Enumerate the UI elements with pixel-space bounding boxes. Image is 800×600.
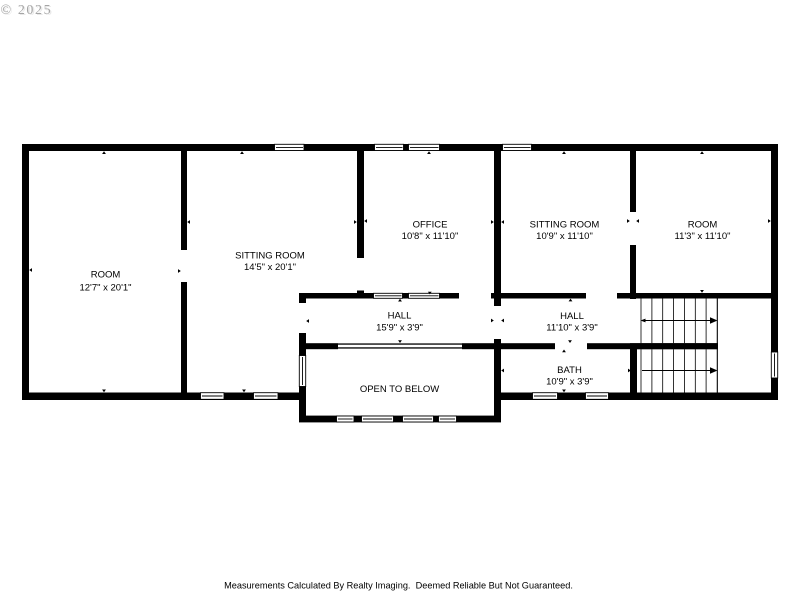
svg-text:10'8" x 11'10": 10'8" x 11'10": [402, 231, 459, 242]
svg-text:HALL: HALL: [560, 311, 584, 322]
svg-text:11'3" x 11'10": 11'3" x 11'10": [675, 231, 731, 242]
svg-text:12'7" x 20'1": 12'7" x 20'1": [79, 283, 131, 294]
svg-text:OFFICE: OFFICE: [413, 220, 448, 231]
svg-text:© 2025: © 2025: [1, 3, 53, 18]
svg-text:14'5" x 20'1": 14'5" x 20'1": [244, 262, 296, 273]
svg-text:SITTING ROOM: SITTING ROOM: [530, 220, 600, 231]
svg-text:10'9" x 3'9": 10'9" x 3'9": [546, 377, 593, 388]
svg-text:10'9" x 11'10": 10'9" x 11'10": [536, 231, 593, 242]
svg-text:ROOM: ROOM: [688, 220, 718, 231]
svg-text:HALL: HALL: [388, 311, 412, 322]
svg-text:15'9" x 3'9": 15'9" x 3'9": [376, 323, 423, 334]
svg-text:Measurements Calculated By Rea: Measurements Calculated By Realty Imagin…: [224, 581, 573, 591]
svg-text:SITTING ROOM: SITTING ROOM: [235, 251, 305, 262]
svg-text:ROOM: ROOM: [91, 270, 121, 281]
svg-text:OPEN TO BELOW: OPEN TO BELOW: [360, 384, 439, 395]
svg-text:11'10" x 3'9": 11'10" x 3'9": [546, 323, 597, 334]
svg-text:BATH: BATH: [557, 365, 582, 376]
